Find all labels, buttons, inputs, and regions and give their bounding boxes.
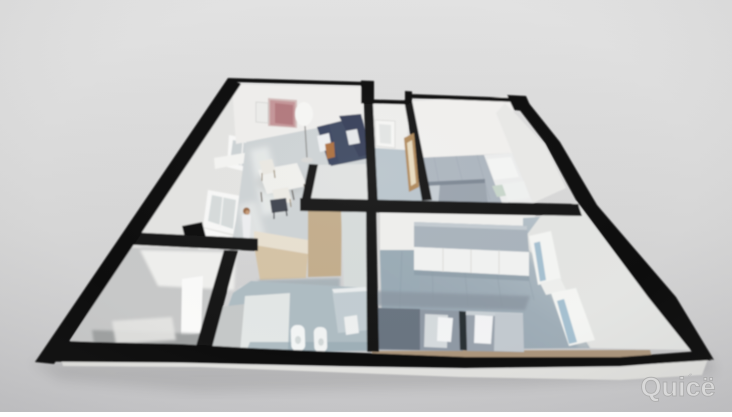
svg-text:Quicë: Quicë (640, 372, 715, 402)
svg-text:´: ´ (688, 372, 692, 386)
